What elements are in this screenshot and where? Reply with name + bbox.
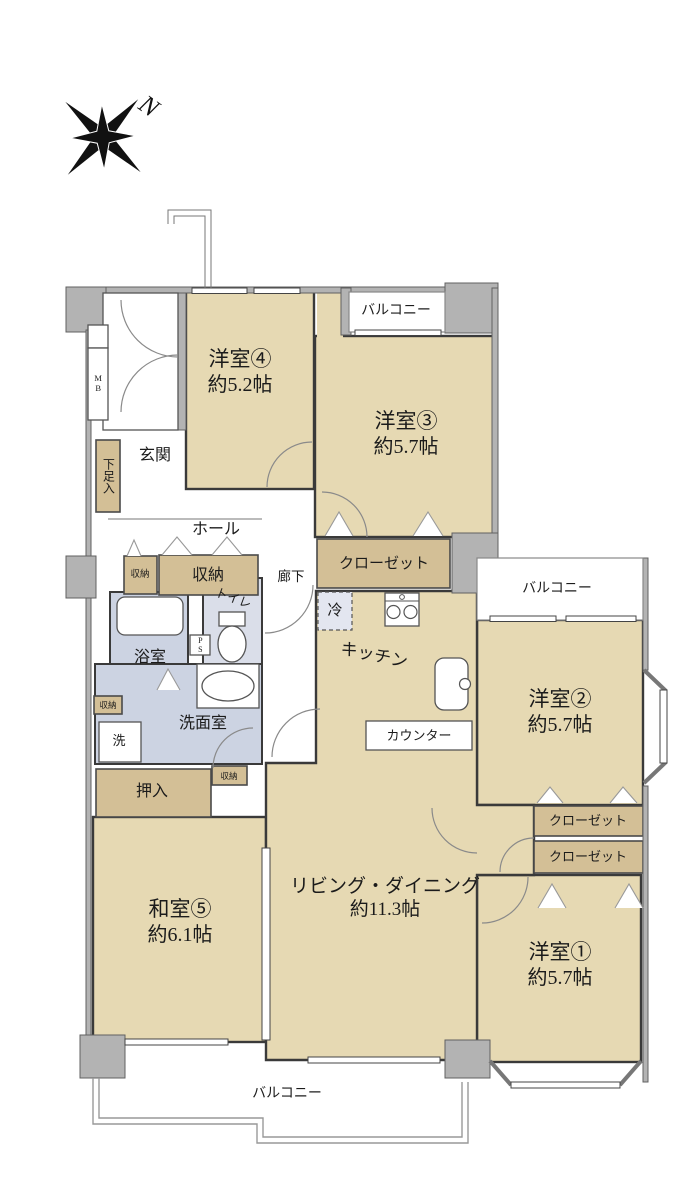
bay-window-room1 xyxy=(511,1082,620,1088)
label-washroom: 洗面室 xyxy=(179,714,227,734)
pillar-bottom-left xyxy=(80,1035,125,1078)
window-room4-b xyxy=(254,288,300,294)
label-room-western4: 洋室④ 約5.2帖 xyxy=(208,347,273,397)
meter-box-small xyxy=(88,325,108,348)
label-storage-hall-large: 収納 xyxy=(192,566,224,586)
bathtub xyxy=(117,597,183,635)
label-counter: カウンター xyxy=(386,728,451,744)
label-oshiire: 押入 xyxy=(136,782,168,802)
label-balcony-right: バルコニー xyxy=(522,580,592,597)
pillar-left-mid xyxy=(66,556,96,598)
label-entrance: 玄関 xyxy=(139,446,171,466)
bay-window-room2 xyxy=(660,690,667,763)
room-western3-size: 約5.7帖 xyxy=(374,435,439,459)
room-western1-name: 洋室① xyxy=(528,940,593,966)
living-name: リビング・ダイニング xyxy=(290,875,480,898)
floorplan-drawing: N xyxy=(0,0,699,1200)
label-meter-box: MB xyxy=(93,373,103,393)
label-room-western3: 洋室③ 約5.7帖 xyxy=(374,409,439,459)
window-japanese5 xyxy=(125,1039,228,1045)
label-balcony-bottom: バルコニー xyxy=(252,1085,322,1102)
living-size: 約11.3帖 xyxy=(290,898,480,921)
kitchen-sink-icon xyxy=(435,658,471,710)
label-washer: 洗 xyxy=(112,733,125,749)
wall-right-lower-b xyxy=(643,786,648,1082)
pillar-bottom-mid xyxy=(445,1040,490,1078)
room-western1-size: 約5.7帖 xyxy=(528,966,593,990)
label-living: リビング・ダイニング 約11.3帖 xyxy=(290,875,480,921)
pipe-line-top xyxy=(168,210,211,288)
label-closet-lower: クローゼット xyxy=(549,849,627,865)
window-room4-a xyxy=(192,288,247,294)
label-pipe-space: PS xyxy=(195,636,205,654)
pillar-top-right xyxy=(445,283,498,333)
label-room-western1: 洋室① 約5.7帖 xyxy=(528,940,593,990)
label-refrigerator: 冷 xyxy=(327,602,342,620)
label-corridor: 廊下 xyxy=(278,569,305,585)
compass-rose xyxy=(25,59,180,214)
room-western4-size: 約5.2帖 xyxy=(208,373,273,397)
room-western4-name: 洋室④ xyxy=(208,347,273,373)
room-japanese5-size: 約6.1帖 xyxy=(148,923,213,947)
label-storage-washroom: 収納 xyxy=(99,700,116,710)
wall-right-lower-a xyxy=(643,558,648,670)
room-western3-name: 洋室③ xyxy=(374,409,439,435)
room-western3-nook xyxy=(317,293,343,338)
sliding-door-japanese5 xyxy=(262,848,270,1040)
window-living xyxy=(308,1057,440,1063)
door-toilet xyxy=(265,585,313,633)
entrance-porch xyxy=(103,293,178,430)
window-room3 xyxy=(355,330,441,336)
label-balcony-top: バルコニー xyxy=(361,302,431,319)
room-japanese5-name: 和室⑤ xyxy=(148,897,213,923)
door-living xyxy=(272,709,320,757)
toilet-bowl xyxy=(218,626,246,662)
label-bath: 浴室 xyxy=(134,648,166,668)
washroom-sink xyxy=(202,671,254,701)
floorplan-page: N 洋室④ 約5.2帖 洋室③ 約5.7帖 洋室② 約5.7帖 洋室① 約5.7… xyxy=(0,0,699,1200)
wall-right-upper xyxy=(492,288,498,560)
label-closet-room3: クローゼット xyxy=(339,555,429,573)
room-western2-size: 約5.7帖 xyxy=(528,713,593,737)
label-hall: ホール xyxy=(192,520,240,540)
label-room-japanese5: 和室⑤ 約6.1帖 xyxy=(148,897,213,947)
label-closet-upper: クローゼット xyxy=(549,813,627,829)
label-storage-japanese: 収納 xyxy=(220,771,237,781)
window-room2-a xyxy=(490,616,556,622)
stove-icon xyxy=(385,593,419,626)
label-shoe-cabinet: 下足入 xyxy=(101,458,116,494)
wall-left xyxy=(86,330,91,1038)
window-room2-b xyxy=(566,616,636,622)
label-room-western2: 洋室② 約5.7帖 xyxy=(528,687,593,737)
room-western2-name: 洋室② xyxy=(528,687,593,713)
label-storage-hall-small: 収納 xyxy=(130,570,149,582)
toilet-tank xyxy=(219,612,245,626)
compass-north-label: N xyxy=(133,89,166,124)
